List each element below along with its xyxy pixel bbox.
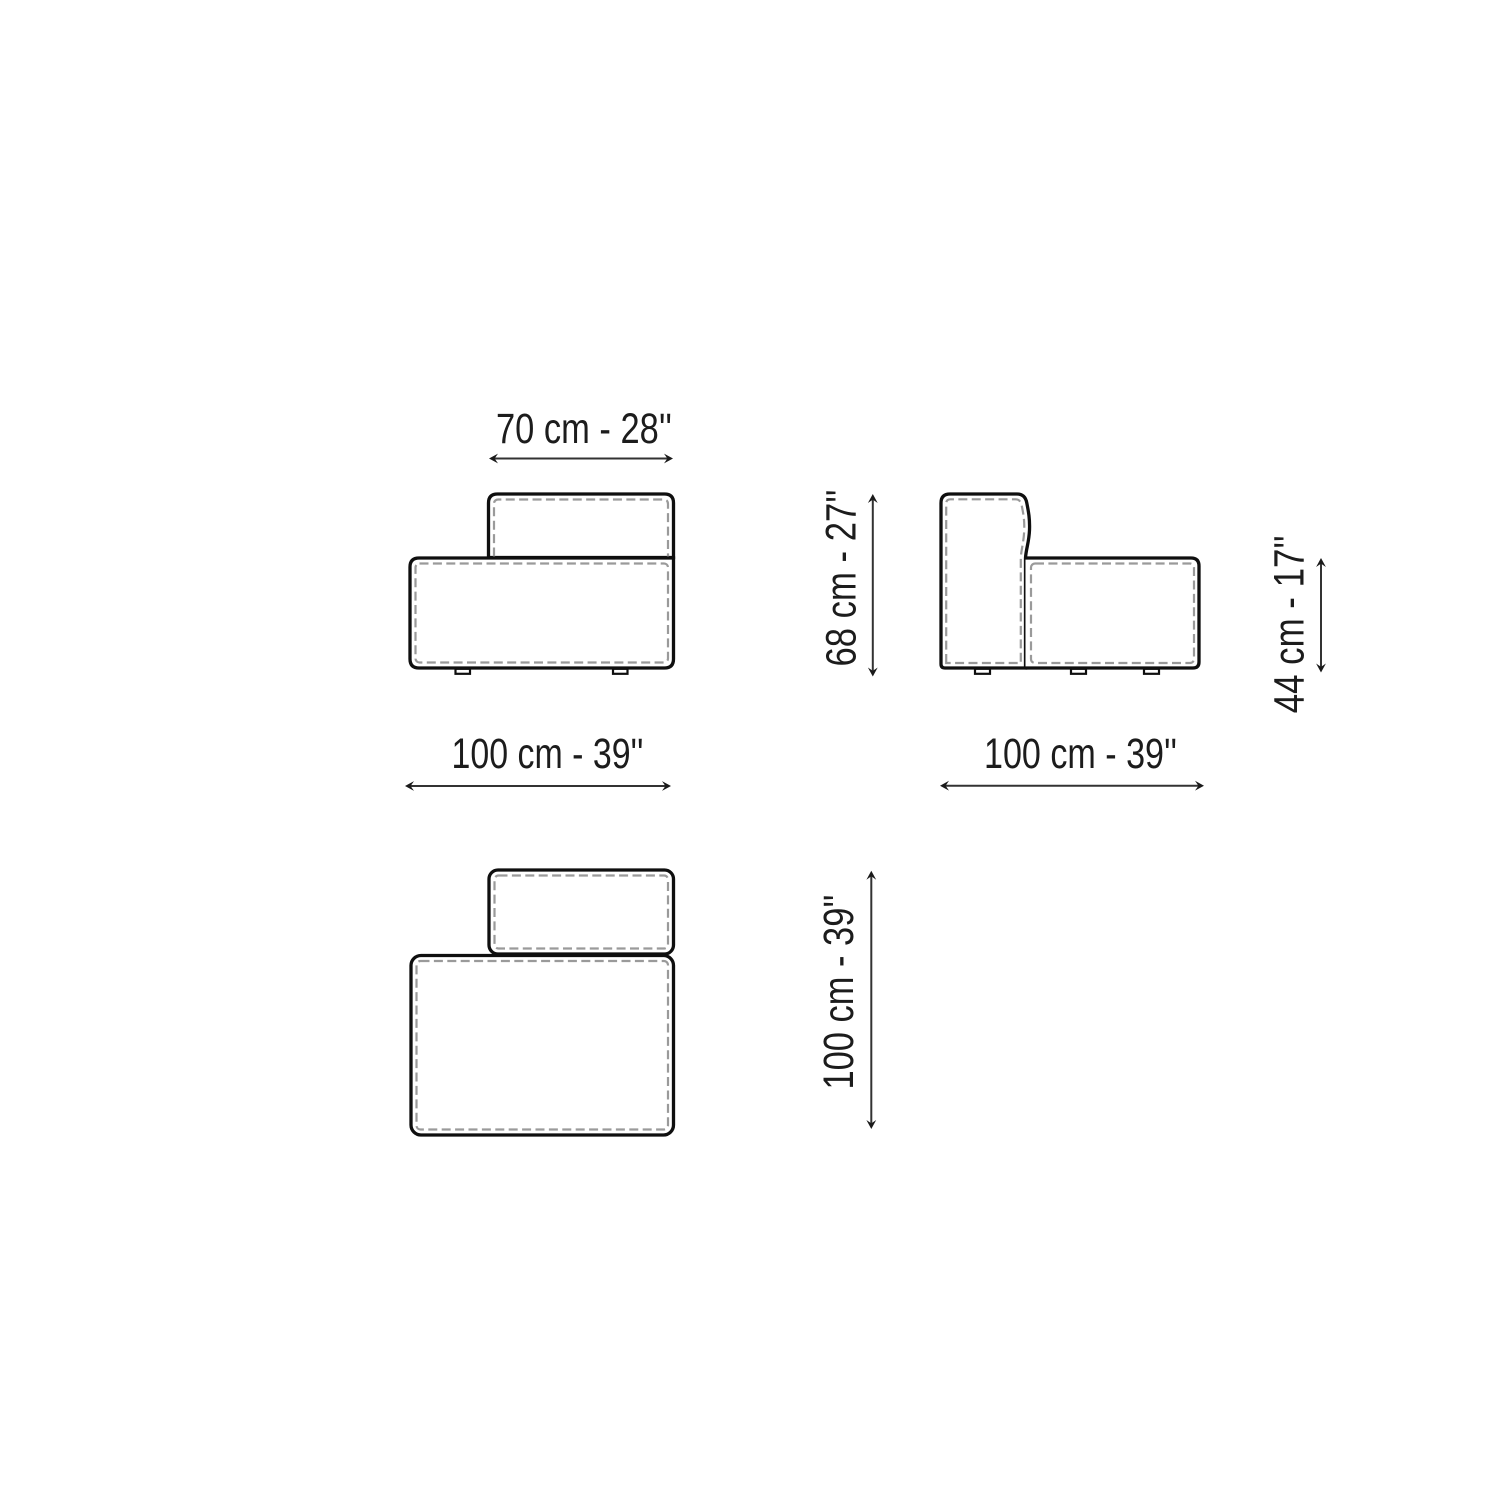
svg-text:70 cm - 28'': 70 cm - 28'' [496,406,672,453]
svg-text:100 cm - 39'': 100 cm - 39'' [816,895,863,1090]
svg-text:44 cm - 17'': 44 cm - 17'' [1267,535,1314,713]
svg-text:100 cm - 39'': 100 cm - 39'' [452,731,644,778]
svg-text:100 cm - 39'': 100 cm - 39'' [984,731,1177,778]
svg-text:68 cm - 27'': 68 cm - 27'' [819,490,866,667]
